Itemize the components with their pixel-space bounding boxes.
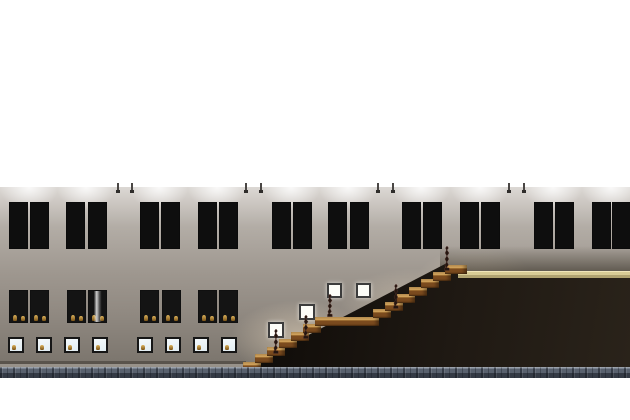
ceiling-light-pool bbox=[448, 184, 512, 212]
small-square-window bbox=[221, 337, 237, 353]
statue-silhouette bbox=[391, 284, 401, 310]
pendant-light-tip bbox=[130, 190, 134, 193]
upper-stained-window bbox=[88, 202, 107, 249]
upper-stained-window bbox=[612, 202, 630, 249]
ceiling-light-pool bbox=[259, 184, 323, 212]
small-square-window bbox=[193, 337, 209, 353]
upper-stained-window bbox=[328, 202, 347, 249]
small-square-window bbox=[92, 337, 108, 353]
pendant-light-tip bbox=[522, 190, 526, 193]
glass-reflection bbox=[89, 291, 106, 322]
gallery-render bbox=[0, 0, 630, 420]
small-square-window bbox=[64, 337, 80, 353]
gold-figurine bbox=[34, 315, 38, 321]
statue bbox=[325, 294, 335, 318]
upper-stained-window bbox=[350, 202, 369, 249]
ceiling-light-pool bbox=[54, 184, 118, 212]
gold-figurine bbox=[96, 345, 100, 350]
gold-figurine bbox=[210, 316, 214, 321]
small-square-window bbox=[165, 337, 181, 353]
gold-figurine bbox=[166, 315, 170, 321]
upper-stained-window bbox=[481, 202, 500, 249]
upper-stained-window bbox=[66, 202, 85, 249]
small-square-window bbox=[36, 337, 52, 353]
upper-stained-window bbox=[402, 202, 421, 249]
ceiling-light-pool bbox=[127, 184, 191, 212]
pendant-light-tip bbox=[391, 190, 395, 193]
gold-figurine bbox=[225, 345, 229, 350]
gold-figurine bbox=[231, 316, 235, 321]
lower-window bbox=[30, 290, 49, 323]
pendant-light-tip bbox=[259, 190, 263, 193]
upper-stained-window bbox=[140, 202, 159, 249]
small-square-window bbox=[137, 337, 153, 353]
statue-silhouette bbox=[442, 246, 452, 272]
lower-window bbox=[9, 290, 28, 323]
right-wall-shade bbox=[440, 246, 630, 273]
lower-window bbox=[88, 290, 107, 323]
gold-figurine bbox=[197, 345, 201, 350]
upper-stained-window bbox=[198, 202, 217, 249]
gold-figurine bbox=[79, 316, 83, 321]
gold-figurine bbox=[169, 345, 173, 350]
statue-silhouette bbox=[325, 294, 335, 318]
ceiling-light-pool bbox=[389, 184, 453, 212]
gold-figurine bbox=[71, 315, 75, 321]
upper-floor-edge bbox=[458, 271, 630, 278]
lower-window bbox=[140, 290, 159, 323]
gold-figurine bbox=[21, 316, 25, 321]
pendant-light-tip bbox=[376, 190, 380, 193]
lower-window bbox=[162, 290, 181, 323]
upper-stained-window bbox=[423, 202, 442, 249]
upper-stained-window bbox=[460, 202, 479, 249]
gold-figurine bbox=[202, 315, 206, 321]
statue-silhouette bbox=[301, 315, 311, 340]
gold-figurine bbox=[141, 345, 145, 350]
upper-stained-window bbox=[293, 202, 312, 249]
wall-frame bbox=[356, 283, 371, 298]
upper-stained-window bbox=[534, 202, 553, 249]
upper-stained-window bbox=[555, 202, 574, 249]
ceiling-light-pool bbox=[185, 184, 249, 212]
pendant-light-tip bbox=[116, 190, 120, 193]
ceiling-light-pool bbox=[316, 184, 380, 212]
gold-figurine bbox=[68, 345, 72, 350]
gold-figurine bbox=[152, 316, 156, 321]
statue bbox=[271, 329, 281, 355]
statue bbox=[301, 315, 311, 340]
gold-figurine bbox=[13, 315, 17, 321]
statue-silhouette bbox=[271, 329, 281, 355]
gold-figurine bbox=[174, 316, 178, 321]
floor-slab bbox=[0, 367, 630, 378]
lower-window bbox=[198, 290, 217, 323]
statue bbox=[391, 284, 401, 310]
ceiling-light-pool bbox=[521, 184, 585, 212]
lower-window bbox=[219, 290, 238, 323]
upper-stained-window bbox=[161, 202, 180, 249]
pendant-light-tip bbox=[244, 190, 248, 193]
gold-figurine bbox=[12, 345, 16, 350]
statue bbox=[442, 246, 452, 272]
pendant-light-tip bbox=[507, 190, 511, 193]
upper-stained-window bbox=[592, 202, 611, 249]
lower-window bbox=[67, 290, 86, 323]
upper-stained-window bbox=[9, 202, 28, 249]
gold-figurine bbox=[42, 316, 46, 321]
small-square-window bbox=[8, 337, 24, 353]
upper-stained-window bbox=[272, 202, 291, 249]
gold-figurine bbox=[144, 315, 148, 321]
upper-stained-window bbox=[219, 202, 238, 249]
gold-figurine bbox=[40, 345, 44, 350]
gold-figurine bbox=[223, 315, 227, 321]
upper-stained-window bbox=[30, 202, 49, 249]
